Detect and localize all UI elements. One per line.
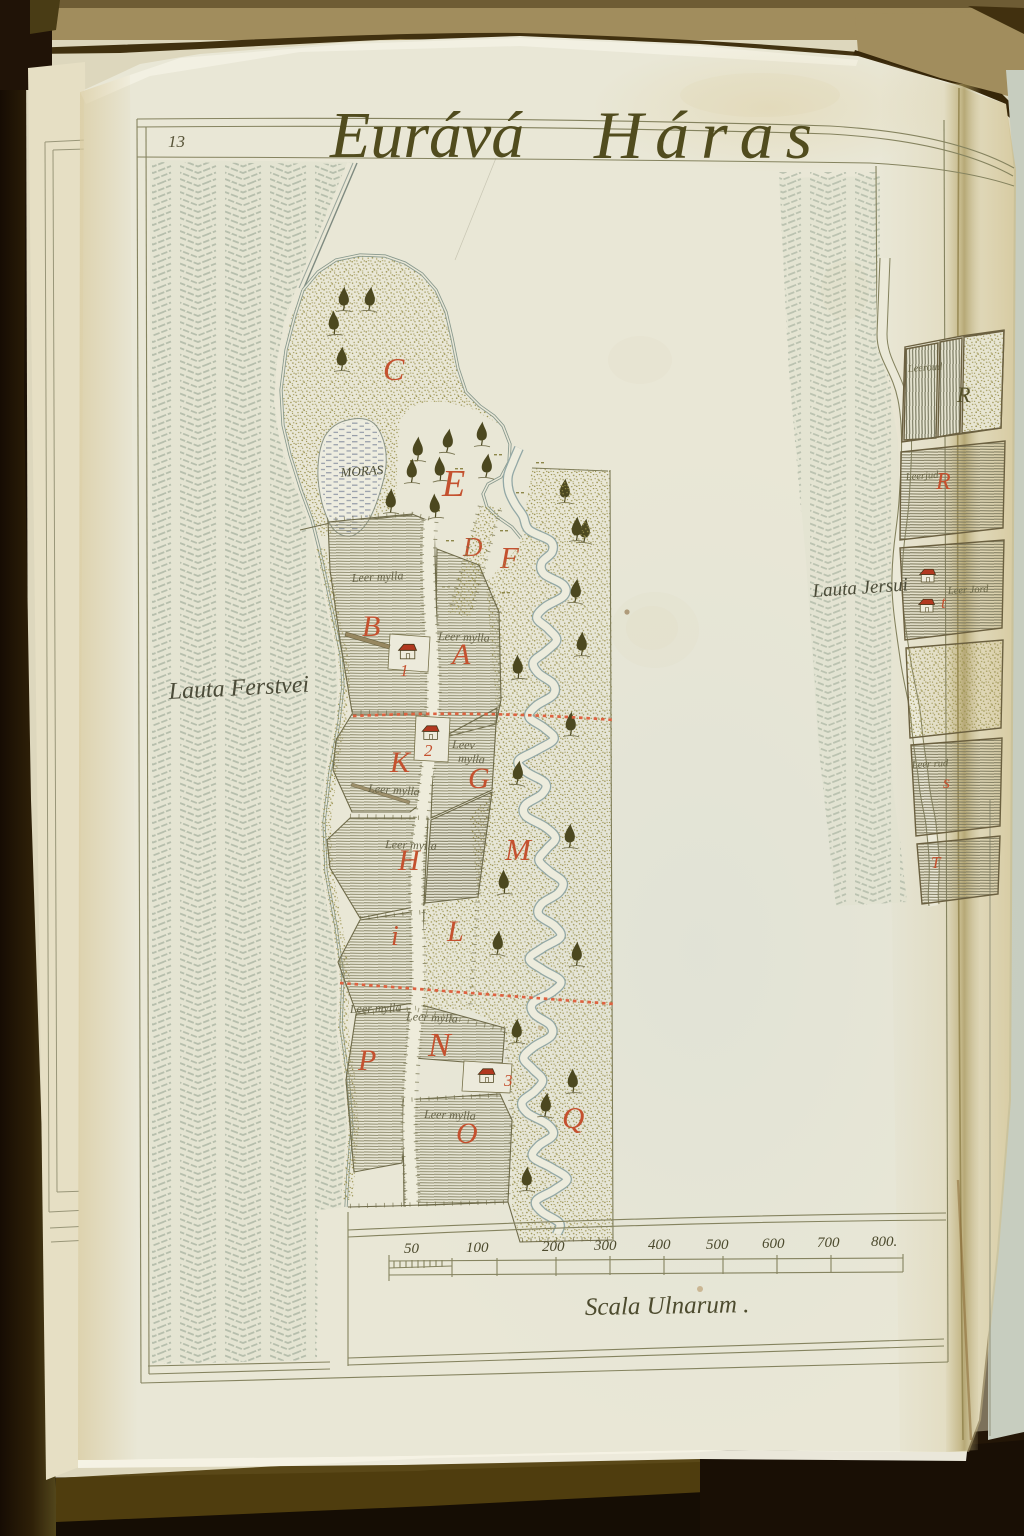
svg-text:K: K xyxy=(389,746,412,779)
svg-text:100: 100 xyxy=(466,1240,489,1256)
svg-text:Leev: Leev xyxy=(451,737,476,752)
svg-text:500: 500 xyxy=(706,1237,729,1253)
svg-text:C: C xyxy=(383,351,405,387)
svg-text:R: R xyxy=(956,382,971,407)
svg-text:s: s xyxy=(943,772,950,792)
svg-text:200: 200 xyxy=(542,1239,565,1255)
svg-text:P: P xyxy=(357,1044,376,1077)
svg-text:Leer mylla: Leer mylla xyxy=(384,837,437,853)
svg-text:G: G xyxy=(468,762,490,795)
svg-text:T: T xyxy=(931,853,942,872)
svg-text:800.: 800. xyxy=(871,1234,897,1250)
svg-text:700: 700 xyxy=(817,1235,840,1251)
svg-text:Leer mylla: Leer mylla xyxy=(405,1009,458,1026)
svg-text:Scala Ulnarum .: Scala Ulnarum . xyxy=(585,1291,750,1321)
svg-text:B: B xyxy=(362,610,380,643)
svg-text:Leer mylla: Leer mylla xyxy=(437,629,490,645)
svg-text:Leer mylla: Leer mylla xyxy=(423,1107,476,1123)
svg-text:Leer mylla: Leer mylla xyxy=(350,568,403,585)
svg-text:600: 600 xyxy=(762,1236,785,1252)
svg-text:MORAS: MORAS xyxy=(339,462,384,480)
svg-text:E: E xyxy=(441,463,465,505)
svg-text:M: M xyxy=(504,832,533,867)
svg-text:300: 300 xyxy=(593,1238,617,1254)
svg-text:Leer rud: Leer rud xyxy=(911,758,950,771)
svg-text:1: 1 xyxy=(400,661,409,680)
svg-text:Háras: Háras xyxy=(593,97,824,173)
svg-text:3: 3 xyxy=(503,1071,513,1090)
svg-text:Leer mylla: Leer mylla xyxy=(349,1000,402,1016)
svg-text:Leer Jord: Leer Jord xyxy=(947,584,990,597)
svg-text:50: 50 xyxy=(404,1241,420,1257)
svg-text:13: 13 xyxy=(168,132,185,151)
svg-text:N: N xyxy=(427,1027,453,1064)
svg-text:Q: Q xyxy=(562,1100,584,1135)
svg-text:400: 400 xyxy=(648,1237,671,1253)
svg-text:2: 2 xyxy=(424,741,433,760)
svg-text:mylla: mylla xyxy=(458,751,485,766)
svg-text:L: L xyxy=(446,915,464,948)
svg-text:Eurává: Eurává xyxy=(329,99,524,172)
svg-text:i: i xyxy=(391,921,399,952)
